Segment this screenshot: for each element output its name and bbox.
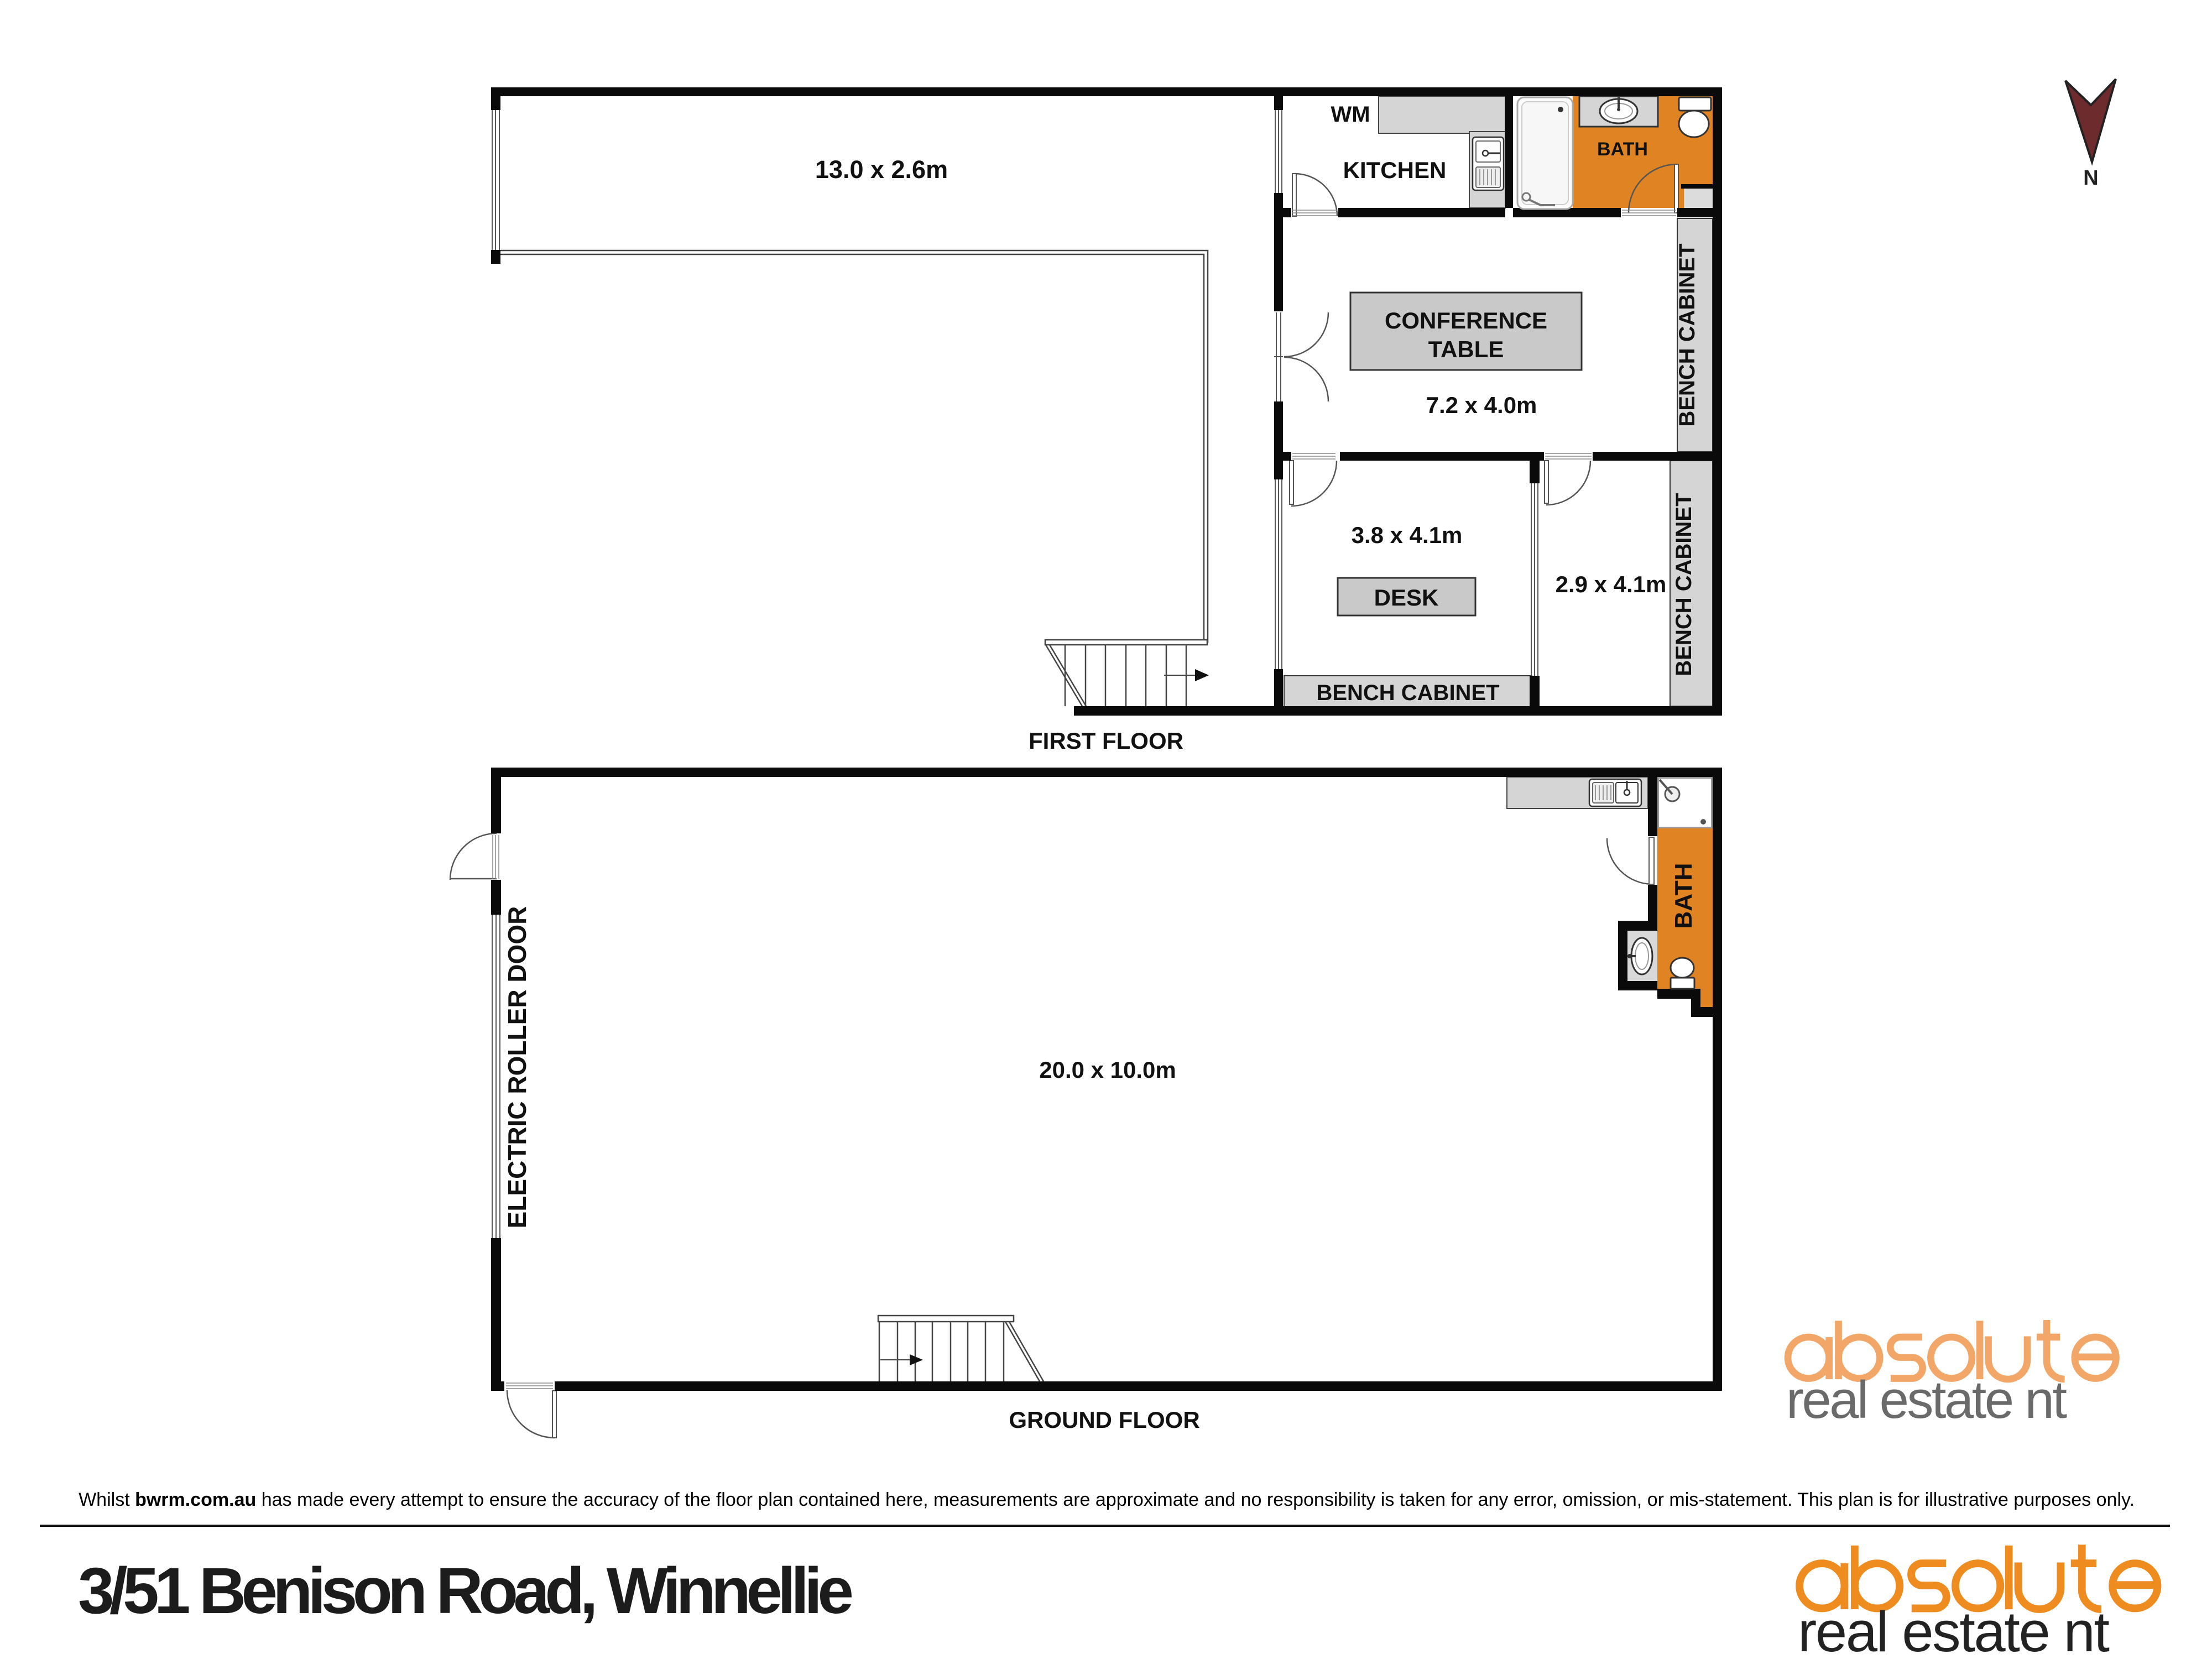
svg-text:20.0 x 10.0m: 20.0 x 10.0m xyxy=(1039,1057,1176,1083)
svg-text:KITCHEN: KITCHEN xyxy=(1343,157,1447,183)
svg-text:real estate nt: real estate nt xyxy=(1786,1370,2067,1430)
svg-text:ELECTRIC ROLLER DOOR: ELECTRIC ROLLER DOOR xyxy=(503,906,531,1229)
svg-text:Whilst bwrm.com.au has made ev: Whilst bwrm.com.au has made every attemp… xyxy=(79,1489,2135,1510)
svg-text:BENCH CABINET: BENCH CABINET xyxy=(1316,681,1499,705)
svg-text:7.2 x 4.0m: 7.2 x 4.0m xyxy=(1426,392,1537,418)
svg-text:2.9 x 4.1m: 2.9 x 4.1m xyxy=(1556,571,1667,597)
svg-text:FIRST FLOOR: FIRST FLOOR xyxy=(1029,728,1183,754)
svg-text:13.0 x 2.6m: 13.0 x 2.6m xyxy=(815,155,948,184)
svg-text:3/51 Benison Road, Winnellie: 3/51 Benison Road, Winnellie xyxy=(78,1554,854,1627)
svg-text:DESK: DESK xyxy=(1374,585,1439,611)
svg-text:BENCH CABINET: BENCH CABINET xyxy=(1675,243,1699,426)
svg-text:TABLE: TABLE xyxy=(1428,336,1504,362)
svg-text:GROUND FLOOR: GROUND FLOOR xyxy=(1009,1407,1199,1433)
svg-text:BENCH CABINET: BENCH CABINET xyxy=(1672,493,1696,676)
svg-text:N: N xyxy=(2083,166,2098,190)
svg-text:BATH: BATH xyxy=(1597,139,1648,160)
svg-text:CONFERENCE: CONFERENCE xyxy=(1385,307,1547,333)
svg-text:real estate nt: real estate nt xyxy=(1798,1600,2110,1659)
svg-text:WM: WM xyxy=(1331,102,1370,127)
svg-text:BATH: BATH xyxy=(1670,863,1697,929)
svg-text:3.8 x 4.1m: 3.8 x 4.1m xyxy=(1352,522,1463,548)
